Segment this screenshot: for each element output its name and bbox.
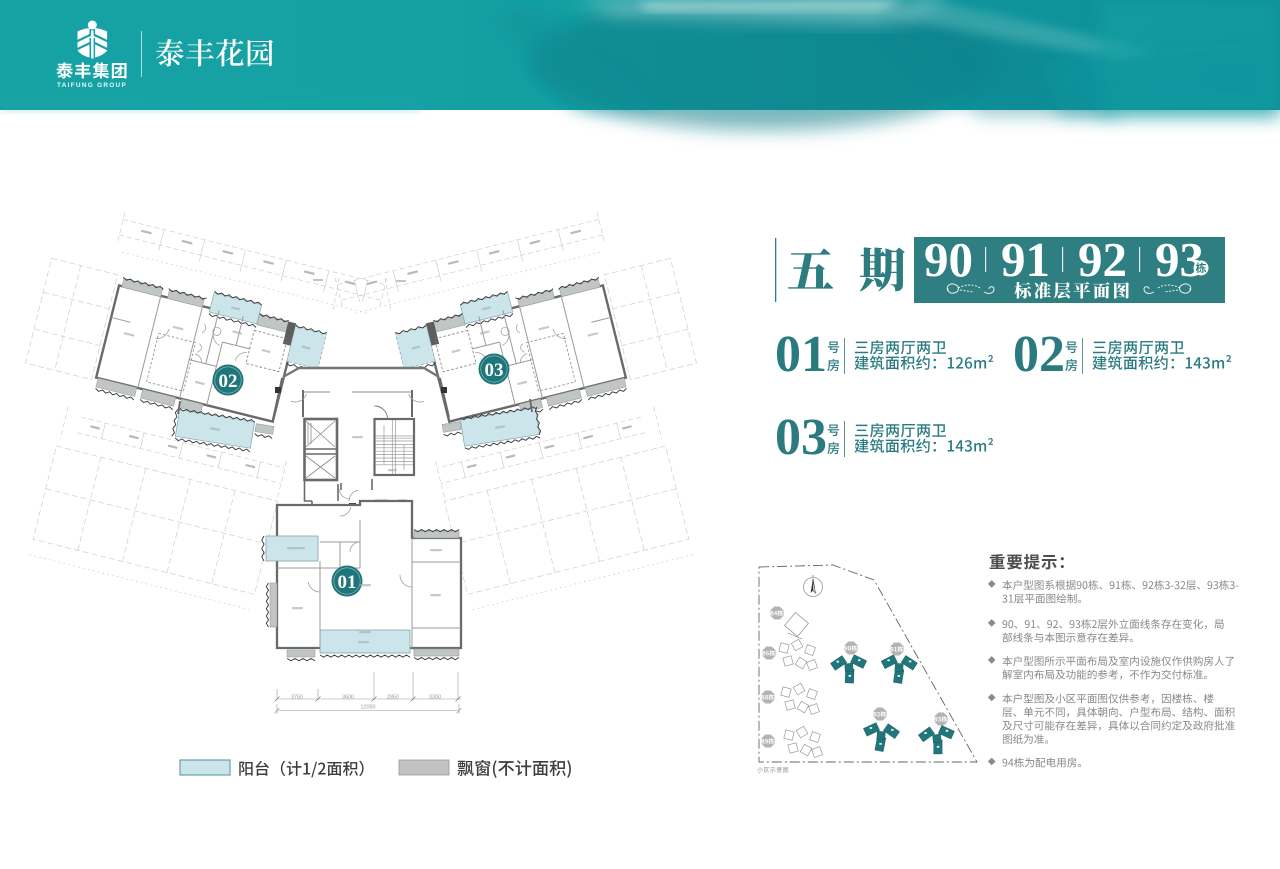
svg-text:93: 93 [1155, 232, 1204, 287]
svg-text:2850: 2850 [387, 695, 399, 701]
svg-text:92: 92 [1078, 232, 1127, 287]
svg-text:3750: 3750 [291, 695, 303, 701]
svg-text:91: 91 [1001, 232, 1050, 287]
svg-text:01: 01 [338, 572, 357, 593]
svg-text:12050: 12050 [361, 705, 376, 711]
svg-text:TAIFUNG GROUP: TAIFUNG GROUP [57, 82, 127, 89]
svg-text:03: 03 [485, 360, 504, 381]
svg-text:02: 02 [1013, 326, 1065, 383]
svg-text:3300: 3300 [429, 695, 441, 701]
svg-text:90: 90 [924, 232, 973, 287]
svg-text:03: 03 [775, 409, 827, 466]
svg-text:01: 01 [775, 326, 827, 383]
svg-text:3600: 3600 [342, 695, 354, 701]
svg-text:02: 02 [219, 371, 238, 392]
